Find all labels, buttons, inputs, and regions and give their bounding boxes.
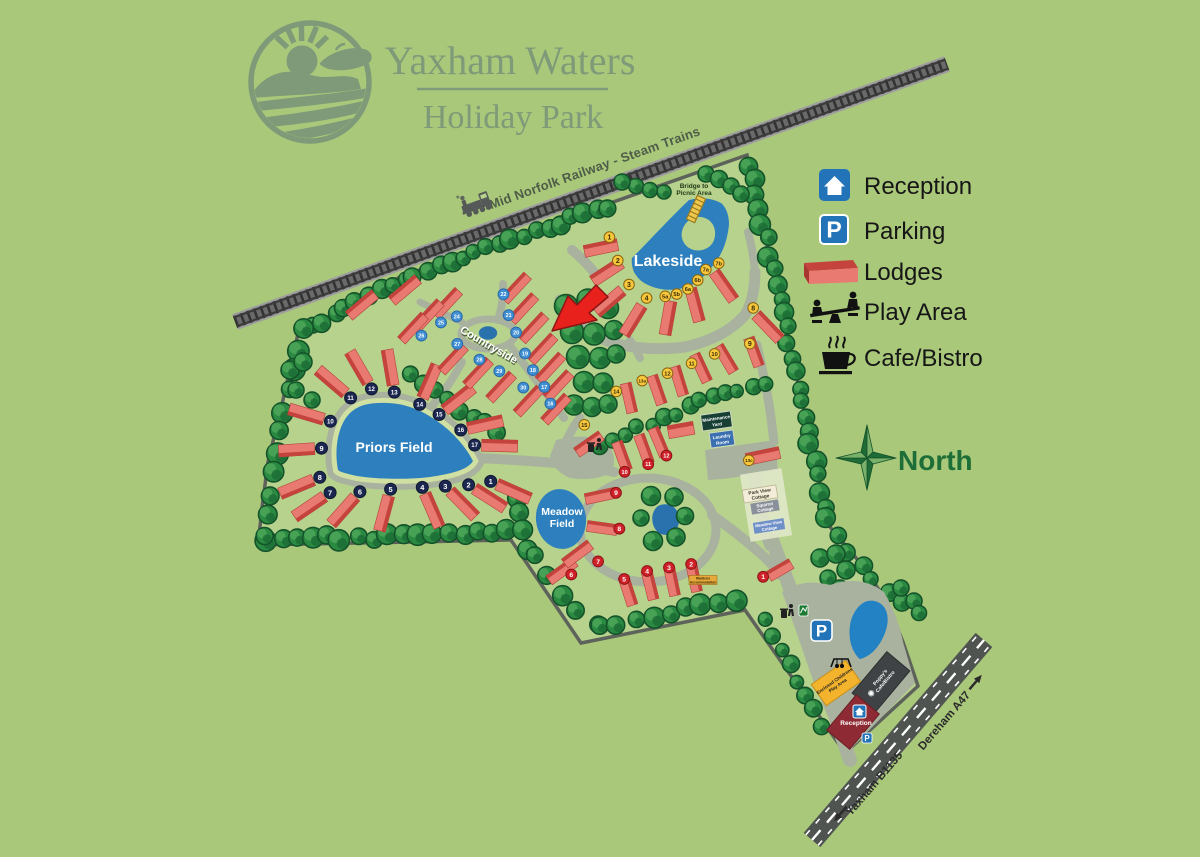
svg-text:13c: 13c (745, 458, 753, 463)
svg-text:5: 5 (389, 485, 393, 494)
svg-text:13a: 13a (638, 378, 646, 383)
svg-text:11: 11 (645, 462, 651, 468)
svg-text:15: 15 (581, 423, 588, 429)
svg-text:9: 9 (614, 490, 618, 497)
svg-text:26: 26 (418, 334, 424, 340)
svg-text:4: 4 (645, 296, 649, 303)
svg-text:Reception: Reception (864, 173, 972, 200)
svg-text:2: 2 (689, 561, 693, 568)
svg-text:17: 17 (471, 443, 478, 449)
svg-text:22: 22 (500, 292, 506, 298)
svg-text:2: 2 (616, 258, 620, 265)
svg-text:6: 6 (358, 487, 362, 496)
svg-text:7: 7 (328, 488, 332, 497)
svg-text:16: 16 (547, 402, 553, 408)
svg-text:18: 18 (530, 368, 536, 374)
svg-text:Yaxham Waters: Yaxham Waters (385, 38, 636, 83)
svg-text:12: 12 (663, 454, 669, 460)
svg-text:2: 2 (467, 481, 471, 490)
svg-text:3: 3 (443, 482, 447, 491)
svg-text:P: P (816, 622, 827, 641)
svg-text:9: 9 (748, 341, 752, 348)
svg-text:15: 15 (436, 413, 443, 419)
svg-text:16: 16 (457, 428, 464, 434)
svg-text:Meadow: Meadow (541, 506, 583, 518)
svg-text:21: 21 (506, 313, 512, 319)
svg-text:Play Area: Play Area (864, 299, 967, 326)
svg-text:Cafe/Bistro: Cafe/Bistro (864, 345, 983, 372)
svg-text:20: 20 (513, 330, 519, 336)
svg-text:17: 17 (541, 385, 547, 391)
svg-text:Field: Field (550, 518, 575, 530)
svg-text:12: 12 (664, 371, 670, 377)
svg-text:24: 24 (454, 314, 460, 320)
svg-text:7: 7 (596, 559, 600, 566)
svg-text:29: 29 (496, 369, 502, 375)
svg-text:P: P (826, 217, 841, 243)
svg-text:13: 13 (391, 390, 398, 396)
svg-text:14: 14 (416, 403, 423, 409)
svg-text:8: 8 (617, 526, 621, 533)
svg-text:11: 11 (347, 396, 354, 402)
svg-text:30: 30 (520, 386, 526, 392)
svg-text:Bridge to: Bridge to (680, 183, 709, 190)
svg-text:Lodges: Lodges (864, 259, 943, 286)
svg-text:Picnic Area: Picnic Area (676, 190, 712, 197)
svg-text:10: 10 (622, 470, 628, 476)
svg-text:27: 27 (454, 342, 460, 348)
svg-text:5a: 5a (662, 294, 669, 300)
svg-text:Reception: Reception (840, 720, 871, 727)
svg-text:5b: 5b (673, 292, 680, 298)
svg-text:1: 1 (607, 235, 611, 242)
svg-text:3: 3 (627, 282, 631, 289)
svg-text:North: North (898, 445, 973, 476)
svg-text:9: 9 (319, 444, 323, 453)
svg-text:1: 1 (489, 477, 493, 486)
svg-text:19: 19 (522, 351, 528, 357)
svg-text:6b: 6b (694, 278, 701, 284)
svg-text:11: 11 (689, 361, 696, 367)
svg-text:7a: 7a (703, 268, 710, 274)
svg-text:8: 8 (751, 305, 755, 312)
svg-text:12: 12 (368, 387, 375, 393)
svg-text:14: 14 (613, 390, 620, 396)
svg-text:10: 10 (711, 352, 717, 358)
svg-text:P: P (864, 734, 870, 743)
svg-text:Priors Field: Priors Field (355, 439, 432, 455)
svg-text:7b: 7b (715, 261, 722, 267)
svg-text:28: 28 (476, 358, 482, 364)
svg-text:4: 4 (645, 568, 649, 575)
svg-text:8: 8 (318, 473, 322, 482)
svg-text:Holiday Park: Holiday Park (423, 99, 603, 136)
svg-text:Lakeside: Lakeside (634, 253, 703, 270)
svg-text:Accommodation: Accommodation (690, 580, 717, 584)
svg-text:6a: 6a (685, 287, 692, 293)
svg-text:Parking: Parking (864, 218, 945, 245)
svg-text:5: 5 (622, 576, 626, 583)
svg-text:25: 25 (438, 320, 444, 326)
svg-text:1: 1 (761, 574, 765, 581)
svg-text:3: 3 (667, 565, 671, 572)
svg-text:6: 6 (569, 572, 573, 579)
svg-text:10: 10 (327, 420, 334, 426)
